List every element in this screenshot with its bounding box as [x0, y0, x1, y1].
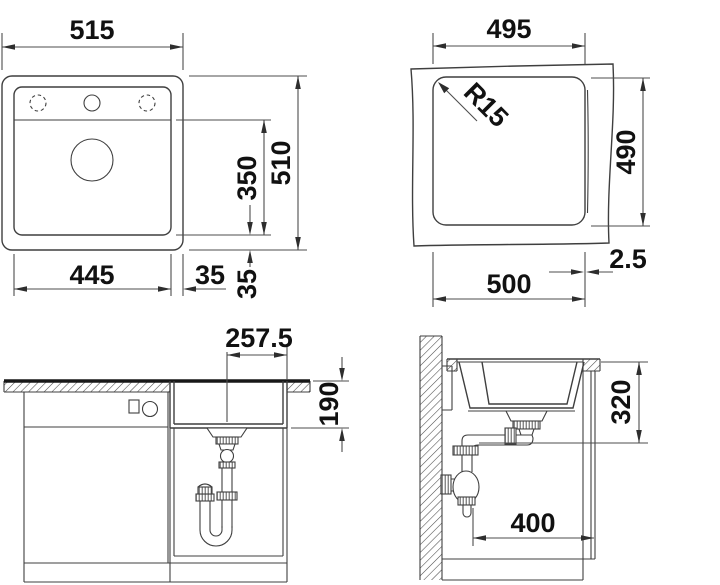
dim-label-trap-height: 320 [606, 379, 636, 424]
dim-label-corner-radius: R15 [458, 77, 514, 133]
worktop-hatch-right [287, 383, 310, 393]
dim-label-overall-width: 515 [69, 15, 114, 45]
technical-drawing-canvas: 515 510 350 445 35 [0, 0, 720, 585]
wall-batten [442, 366, 452, 410]
sink-outer-edge [2, 76, 183, 250]
elbow-nut-side [453, 446, 478, 455]
dim-label-bowl-depth: 350 [232, 155, 262, 200]
wall-hatch [420, 336, 442, 580]
strainer-flange [207, 428, 247, 437]
dim-label-bowl-width: 445 [69, 260, 114, 290]
strainer-flange-side [506, 411, 547, 421]
dishwasher-button [129, 400, 139, 413]
worktop-edges-side [447, 359, 600, 371]
sink-bowl-edge [14, 87, 171, 235]
cutout-edge-shadow [588, 90, 589, 213]
wall-outlet-nut [441, 475, 451, 494]
trap-tail-cap [463, 505, 471, 517]
dim-cutout-width-bottom: 500 [433, 252, 585, 307]
dim-cutout-width: 495 [433, 14, 585, 64]
branch-nut-upper [198, 487, 212, 494]
drain-trap-front [196, 428, 247, 546]
dim-reveal: 2.5 [549, 244, 647, 275]
dishwasher-knob [143, 402, 158, 417]
bowl-section-side [459, 362, 584, 408]
cabinet-lines [24, 392, 287, 582]
dim-label-cutout-depth: 490 [611, 129, 641, 174]
strainer-reducer-side [519, 429, 534, 435]
dim-label-rim-bottom: 35 [232, 269, 262, 299]
pipe-nut-upper [219, 462, 235, 468]
front-view: 257.5 190 [4, 323, 349, 582]
strainer-nut-side [513, 421, 540, 429]
strainer-nut [216, 437, 238, 444]
dim-corner-radius: R15 [438, 77, 514, 133]
j-bend [200, 497, 232, 546]
pipe-union-side [505, 428, 516, 444]
tap-hole-center [84, 95, 100, 111]
dim-label-overall-depth: 510 [266, 140, 296, 185]
dim-label-cutout-width: 495 [486, 14, 531, 44]
dim-label-reveal: 2.5 [609, 244, 647, 274]
dim-rim-bottom: 35 [232, 205, 262, 299]
worktop-section-right [583, 360, 600, 371]
dim-rim-right: 35 [183, 260, 226, 292]
dim-overall-width: 515 [2, 15, 183, 70]
dim-label-cutout-width-bottom: 500 [486, 269, 531, 299]
branch-nut-lower [196, 494, 214, 501]
pipe-union-nut [217, 492, 237, 500]
worktop-hatch-left [4, 383, 170, 393]
dim-clearance: 400 [473, 508, 594, 546]
dim-cutout-depth: 490 [591, 78, 650, 226]
worktop-section-left [447, 360, 457, 371]
top-view: 515 510 350 445 35 [2, 15, 307, 299]
elbow-joint [221, 450, 234, 463]
dim-label-clearance: 400 [510, 508, 555, 538]
bowl-section [170, 381, 287, 428]
drawing-svg: 515 510 350 445 35 [0, 0, 720, 585]
drain-trap-side [441, 411, 547, 517]
tap-hole-right-dashed [139, 95, 155, 111]
dim-trap-height: 320 [479, 362, 648, 443]
dim-label-drain-offset: 257.5 [225, 323, 293, 353]
dim-bowl-depth: 350 [176, 120, 271, 235]
dim-label-bowl-height: 190 [314, 381, 344, 426]
cutout-view: R15 495 490 500 2.5 [411, 14, 650, 307]
drain-hole [71, 139, 113, 181]
trap-lower-nut [458, 497, 475, 505]
tap-hole-left-dashed [30, 95, 46, 111]
dim-bowl-height: 190 [291, 357, 349, 452]
side-view: 320 400 [420, 336, 648, 580]
dim-label-rim-right: 35 [195, 260, 225, 290]
dim-bowl-width: 445 [14, 254, 183, 296]
